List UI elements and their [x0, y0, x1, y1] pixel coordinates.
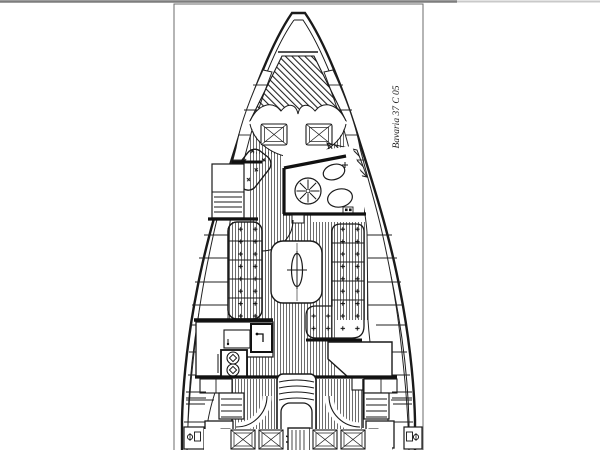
- door-jamb: [292, 215, 304, 223]
- head-compartment: [283, 146, 366, 214]
- plan-label: Bavaria 37 C 05: [392, 85, 402, 148]
- hull-locker-icon: [404, 427, 422, 449]
- scanned-floorplan-page: Bavaria 37 C 05: [0, 0, 600, 450]
- port-mid-cabinets: [212, 164, 244, 218]
- companionway-ladder: [288, 428, 310, 450]
- stove-icon: [218, 350, 247, 377]
- galley-counter-inset: [224, 330, 250, 348]
- shelf-icon: [219, 393, 244, 419]
- vberth-pillow-port: [261, 124, 287, 145]
- head-floor: [283, 146, 364, 214]
- vberth-pillow-starboard: [306, 124, 332, 145]
- yacht-floorplan-diagram: Bavaria 37 C 05: [0, 0, 600, 450]
- settee-port: [228, 222, 262, 319]
- shower-icon: [295, 178, 321, 204]
- galley-sink: [251, 324, 272, 352]
- hull-locker-icon: [184, 427, 204, 449]
- shelf-icon: [364, 393, 389, 419]
